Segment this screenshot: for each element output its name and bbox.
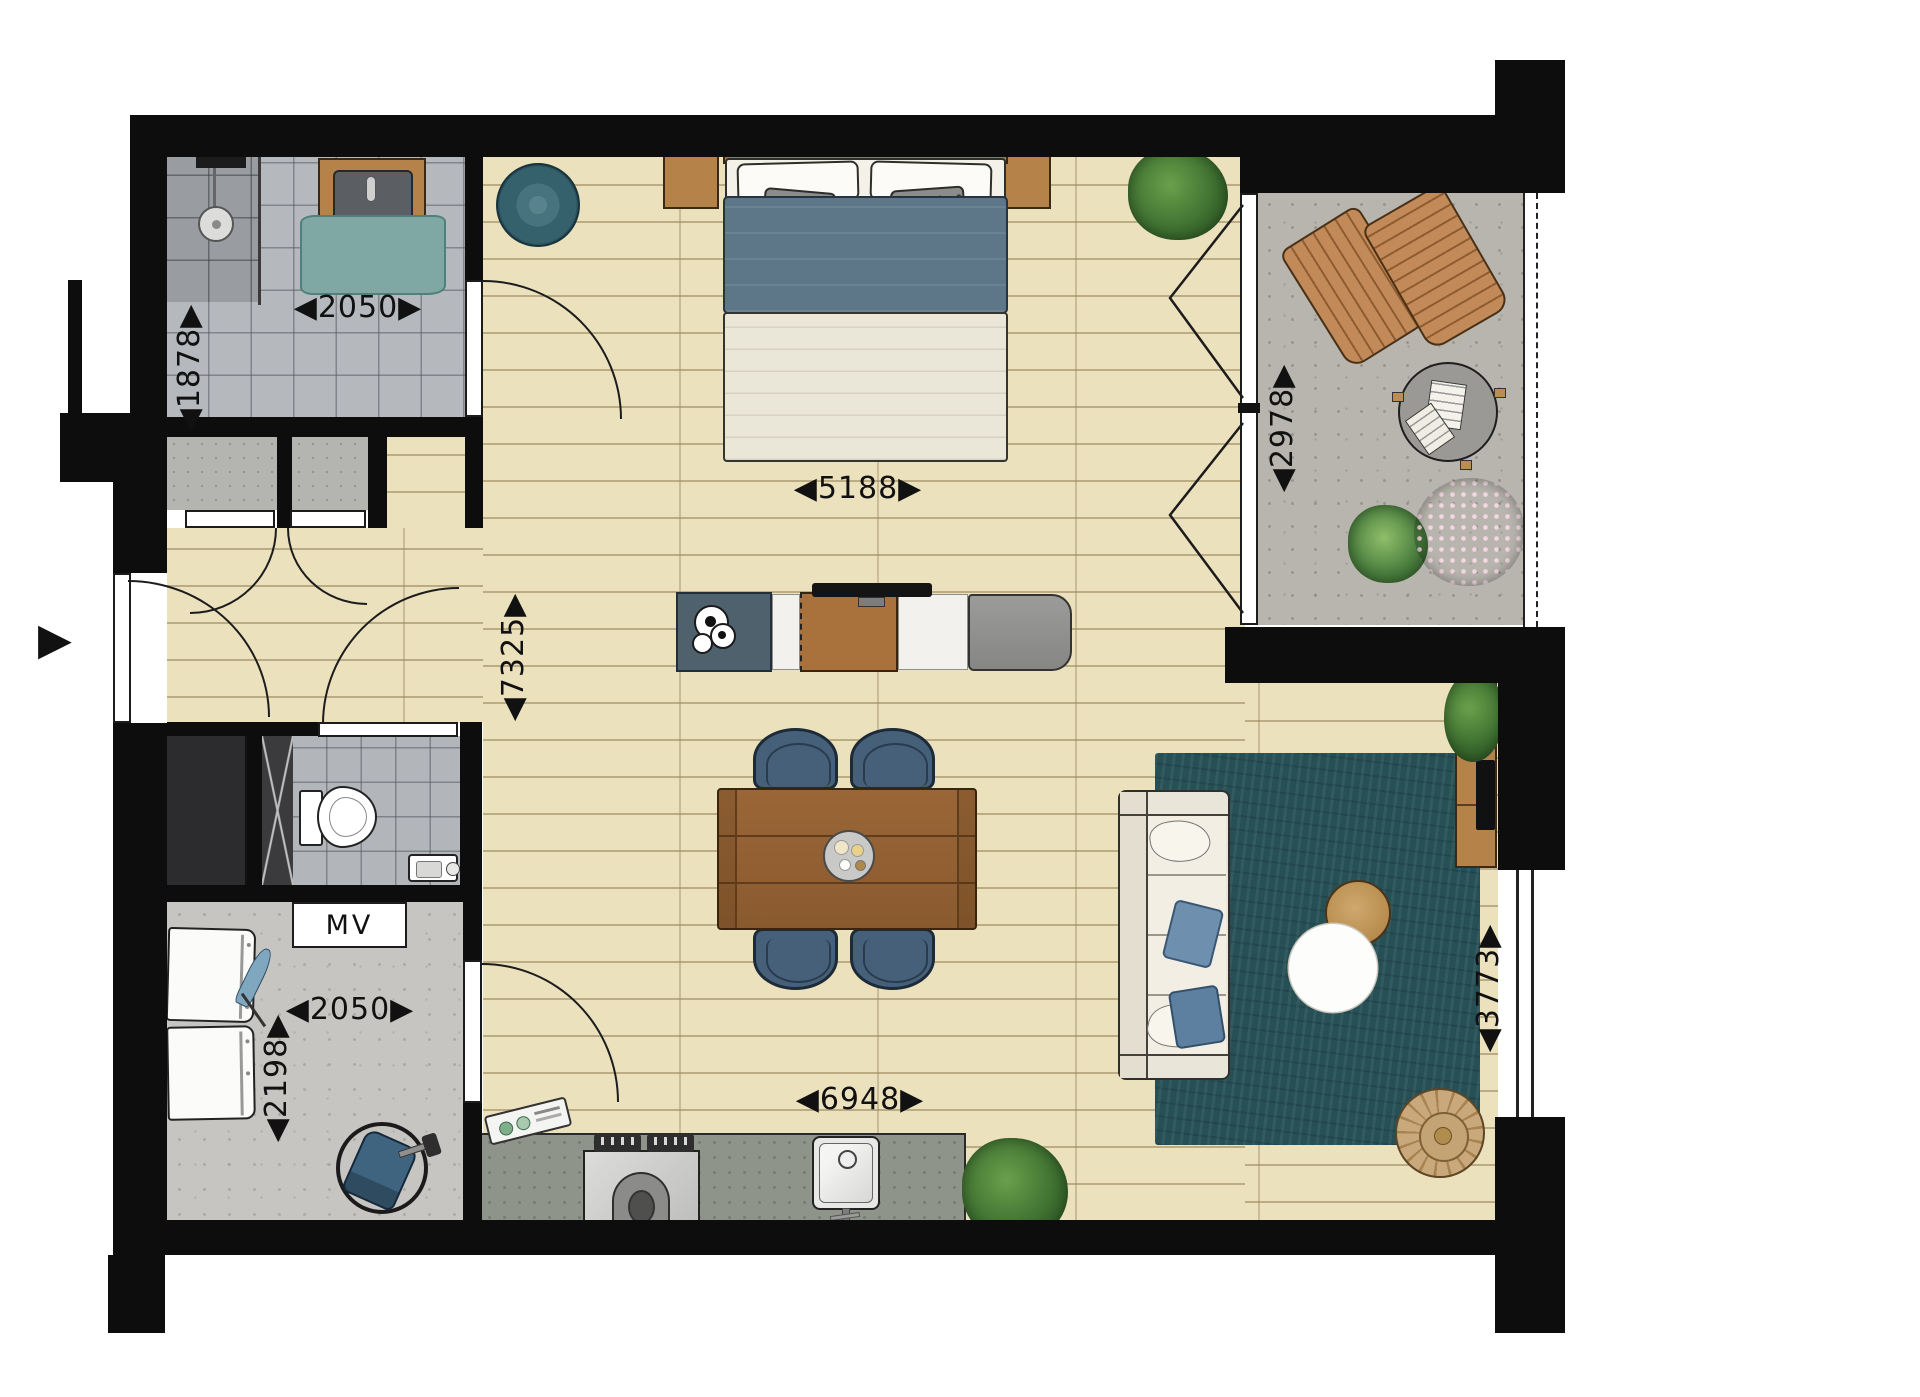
tv-on-sideboard [812,583,932,597]
tv-screen [1476,760,1495,830]
washer [166,927,256,1023]
sofa-throw-blue-2 [1168,984,1226,1049]
nightstand-left [663,153,719,209]
shower-fixture-bar [196,157,246,168]
hall-toilet-wall [167,722,318,736]
living-window-frame [1516,870,1534,1117]
sideboard [676,592,1072,672]
dining-chair-top-left [753,728,838,790]
dim-bathroom-width: ◀2050▶ [268,290,448,326]
sink-drain [838,1150,857,1169]
mv-label: MV [326,910,374,941]
top-wall [130,115,1565,157]
toilet-bottom-wall [167,885,482,902]
stove-oval [628,1190,655,1224]
closet-right-threshold [290,510,366,528]
bedroom-pouf [496,163,580,247]
sofa-arm-bottom [1120,1054,1228,1078]
storage-door-leaf [463,960,482,1103]
left-wall-mid [113,482,167,573]
tv-stand [858,597,885,607]
shower-glass-screen [258,157,261,305]
sideboard-white-section-1 [772,594,800,670]
closet-right-wall [368,437,387,528]
left-bottom-stub [108,1255,165,1333]
bowl-small [692,633,713,654]
shower-head-dot [212,220,221,229]
dim-bedroom-width: ◀5188▶ [768,471,948,507]
technical-shaft [262,736,293,885]
left-exterior-tab [68,280,82,413]
balcony-table [1398,362,1498,462]
dining-chair-bottom-left [753,928,838,990]
dim-balcony-depth: ◀2978▶ [1265,338,1301,518]
bathroom-faucet [366,176,376,202]
balcony-pink-plant [1414,478,1524,586]
bottom-wall [167,1220,1495,1255]
hall-wardrobe [167,736,247,885]
bed-duvet [723,196,1008,314]
left-wall-upper [130,115,167,420]
entrance-arrow-icon: ▶ [38,614,72,665]
dim-interior-depth: ◀7325▶ [496,567,532,747]
sofa-arm-top [1120,792,1228,816]
storage-right-wall-upper [463,902,482,960]
floor-plan: ◀7325▶ [0,0,1920,1397]
dim-living-width: ◀3773▶ [1471,898,1507,1078]
left-wall-lower [113,723,167,1255]
bath-mat [300,215,446,295]
living-l-wall [1225,627,1565,683]
bathroom-right-wall-upper [465,157,483,280]
wardrobe-divider-wall [247,736,262,885]
dim-kitchen-width: ◀6948▶ [770,1082,950,1118]
sideboard-white-section-2 [898,594,968,670]
sofa [1118,790,1230,1080]
balcony-railing [1523,193,1538,627]
bathroom-door-leaf [465,280,483,417]
balcony-top-wall [1240,157,1565,193]
hallway-nook-floor [387,437,465,528]
burner-grate-left [594,1134,641,1152]
dim-bathroom-depth: ◀1878▶ [172,278,208,458]
toilet-right-wall [460,722,482,902]
balcony-door-mid-post [1238,403,1260,413]
closet-right-floor [292,437,368,510]
closet-left-threshold [185,510,275,528]
dining-chair-top-right [850,728,935,790]
table-apron-right [957,790,975,928]
dryer [166,1025,256,1121]
dining-centerpiece-plate [823,830,875,882]
chimney-block [1495,60,1565,115]
dining-chair-bottom-right [850,928,935,990]
kitchen-counter [480,1133,966,1222]
kitchen-sink [812,1136,880,1210]
burner-grate-right [647,1134,694,1152]
right-wall-upper [1498,683,1565,870]
bed-blanket [723,312,1008,462]
storage-right-wall-lower [463,1103,482,1222]
toilet-hand-basin [408,854,458,882]
floor-pouf [1395,1088,1485,1178]
mv-box: MV [292,902,407,948]
toilet-door-threshold [318,722,458,737]
coffee-table-white [1289,924,1377,1012]
right-bottom-block [1495,1117,1565,1333]
dim-storage-depth: ◀2198▶ [259,988,295,1168]
table-apron-left [719,790,737,928]
bowl-medium-center [718,631,726,639]
sideboard-gray-throw [968,594,1072,671]
sofa-back [1120,792,1148,1078]
